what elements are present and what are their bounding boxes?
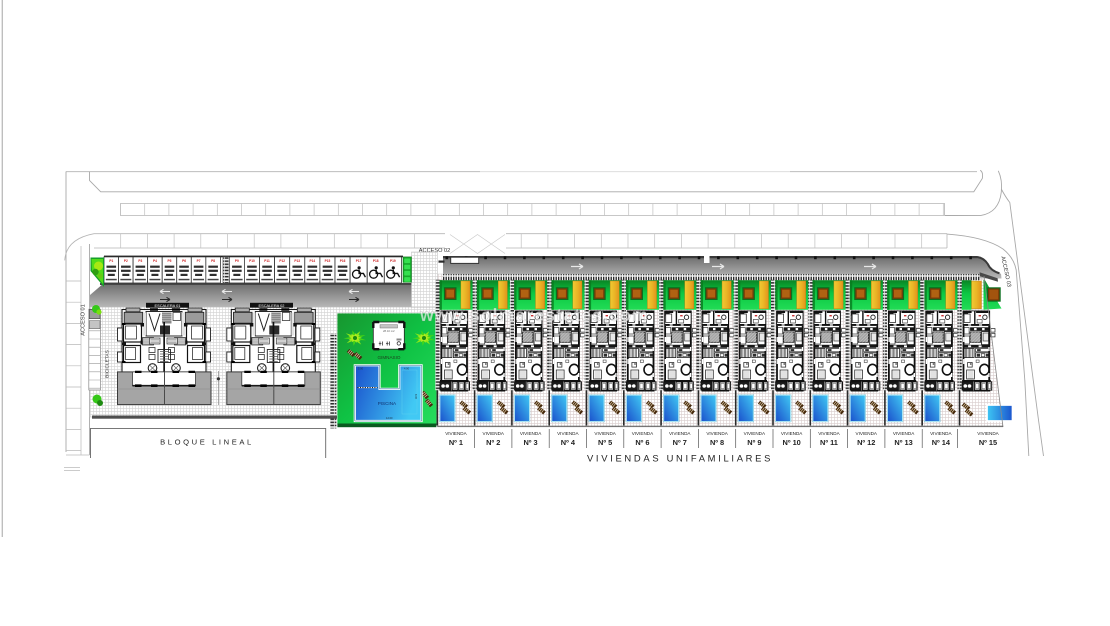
svg-text:Nº 13: Nº 13 <box>894 438 912 447</box>
svg-text:VIVIENDA: VIVIENDA <box>744 431 766 436</box>
svg-text:Nº 6: Nº 6 <box>635 438 649 447</box>
svg-text:Nº 4: Nº 4 <box>561 438 576 447</box>
svg-text:VIVIENDA: VIVIENDA <box>520 431 542 436</box>
svg-text:P10: P10 <box>249 259 255 263</box>
svg-text:VIVIENDA: VIVIENDA <box>930 431 952 436</box>
svg-text:VIVIENDA: VIVIENDA <box>594 431 616 436</box>
svg-text:Nº 8: Nº 8 <box>710 438 724 447</box>
svg-text:Nº 9: Nº 9 <box>747 438 761 447</box>
svg-text:P17: P17 <box>356 259 362 263</box>
svg-text:www.solmarestates.com: www.solmarestates.com <box>419 305 649 325</box>
svg-text:VIVIENDA: VIVIENDA <box>706 431 728 436</box>
svg-text:P2: P2 <box>124 259 128 263</box>
svg-text:8.00: 8.00 <box>414 394 418 400</box>
svg-text:Nº 15: Nº 15 <box>979 438 997 447</box>
svg-text:P16: P16 <box>340 259 346 263</box>
svg-text:ESCALERA 02: ESCALERA 02 <box>259 303 285 308</box>
svg-text:Nº 14: Nº 14 <box>932 438 951 447</box>
svg-text:VIVIENDA: VIVIENDA <box>893 431 915 436</box>
svg-text:P9: P9 <box>235 259 239 263</box>
svg-text:P12: P12 <box>279 259 285 263</box>
svg-text:Nº 1: Nº 1 <box>449 438 463 447</box>
svg-text:VIVIENDA: VIVIENDA <box>818 431 840 436</box>
svg-text:P7: P7 <box>197 259 201 263</box>
svg-text:ACCESO 01: ACCESO 01 <box>81 304 87 335</box>
svg-text:P6: P6 <box>182 259 186 263</box>
svg-text:P11: P11 <box>264 259 270 263</box>
svg-text:P19: P19 <box>390 259 396 263</box>
svg-text:4.00: 4.00 <box>404 367 410 371</box>
svg-text:P1: P1 <box>109 259 113 263</box>
svg-text:12.00: 12.00 <box>386 416 393 420</box>
svg-text:VIVIENDA: VIVIENDA <box>781 431 803 436</box>
svg-text:P8: P8 <box>211 259 215 263</box>
svg-text:P15: P15 <box>325 259 331 263</box>
svg-text:5.00: 5.00 <box>358 367 364 371</box>
svg-text:VIVIENDAS UNIFAMILIARES: VIVIENDAS UNIFAMILIARES <box>587 453 773 464</box>
svg-text:VIVIENDA: VIVIENDA <box>557 431 579 436</box>
svg-text:VIVIENDA: VIVIENDA <box>856 431 878 436</box>
svg-text:VIVIENDA: VIVIENDA <box>669 431 691 436</box>
svg-text:P5: P5 <box>168 259 172 263</box>
svg-text:VIVIENDA: VIVIENDA <box>977 431 999 436</box>
svg-text:ESCALERA 01: ESCALERA 01 <box>155 303 181 308</box>
svg-text:P13: P13 <box>294 259 300 263</box>
svg-text:P14: P14 <box>310 259 316 263</box>
svg-text:VIVIENDA: VIVIENDA <box>483 431 505 436</box>
svg-text:Nº 3: Nº 3 <box>523 438 537 447</box>
svg-text:P4: P4 <box>153 259 157 263</box>
svg-text:GIMNASIO: GIMNASIO <box>378 355 401 360</box>
svg-text:P3: P3 <box>138 259 142 263</box>
svg-text:28.10 m2: 28.10 m2 <box>383 329 395 333</box>
svg-text:Nº 11: Nº 11 <box>820 438 838 447</box>
svg-text:P18: P18 <box>373 259 379 263</box>
svg-text:BLOQUE LINEAL: BLOQUE LINEAL <box>160 438 254 447</box>
svg-text:PISCINA: PISCINA <box>378 401 397 406</box>
svg-text:Nº 2: Nº 2 <box>486 438 500 447</box>
svg-text:BICICLETAS: BICICLETAS <box>105 350 111 378</box>
svg-text:Nº 12: Nº 12 <box>857 438 875 447</box>
svg-text:Nº 7: Nº 7 <box>673 438 687 447</box>
svg-text:Nº 5: Nº 5 <box>598 438 612 447</box>
svg-text:Nº 10: Nº 10 <box>782 438 800 447</box>
svg-text:VIVIENDA: VIVIENDA <box>632 431 654 436</box>
svg-text:VIVIENDA: VIVIENDA <box>445 431 467 436</box>
